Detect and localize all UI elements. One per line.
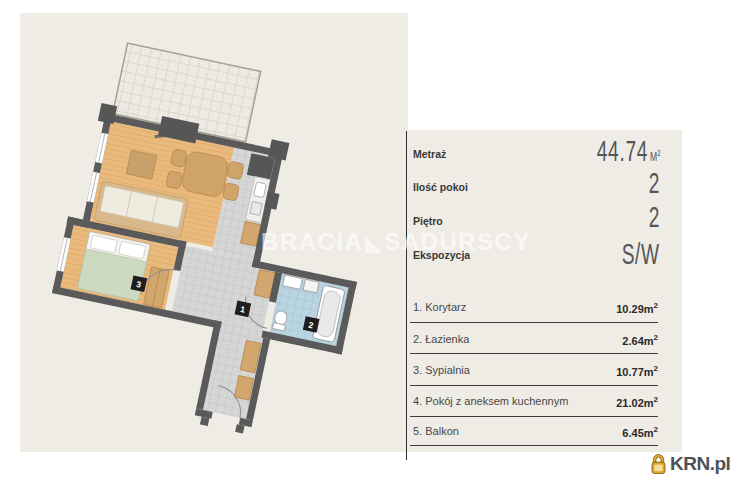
chair: [222, 183, 239, 202]
room-row-label: 1. Korytarz: [413, 301, 466, 313]
row-separator: [410, 445, 658, 446]
coffee-table: [126, 150, 156, 179]
room-row-label: 3. Sypialnia: [413, 364, 470, 376]
dining-table: [180, 150, 229, 198]
chair: [227, 161, 244, 180]
watermark-part1: BRACIA: [261, 228, 363, 255]
top-right-whitespace: [408, 13, 682, 130]
room-row-label: 2. Łazienka: [413, 333, 469, 345]
room-row-area: 2.64m2: [622, 333, 658, 347]
krn-logo: KRN.pl: [650, 453, 730, 475]
panel-divider: [406, 131, 407, 460]
spec-label-ilosc-pokoi: Ilość pokoi: [413, 181, 468, 193]
row-separator: [410, 385, 658, 386]
spec-value-ilosc-pokoi: 2: [649, 169, 660, 198]
listing-floorplan-card: 1 2 3 BRACIA◣SADURSCY Metraż Ilość pokoi…: [0, 0, 740, 490]
row-separator: [410, 353, 658, 354]
spec-label-pietro: Piętro: [413, 215, 443, 227]
details-panel: Metraż Ilość pokoi Piętro Ekspozycja 44.…: [408, 130, 682, 452]
spec-value-ekspozycja: S/W: [622, 240, 660, 269]
washing-machine: [303, 279, 319, 293]
krn-padlock-icon: [650, 453, 667, 475]
room-row-area: 10.29m2: [616, 301, 658, 315]
room-row-area: 6.45m2: [622, 425, 658, 439]
chair: [166, 171, 183, 190]
room-row-label: 5. Balkon: [413, 425, 459, 437]
chair: [170, 149, 187, 168]
spec-label-metraz: Metraż: [413, 148, 446, 160]
row-separator: [410, 416, 658, 417]
wall-pier: [268, 139, 289, 160]
room-row-label: 4. Pokój z aneksem kuchennym: [413, 395, 568, 407]
cooktop: [250, 202, 262, 216]
room-row-area: 21.02m2: [616, 395, 658, 409]
spec-value-pietro: 2: [649, 203, 660, 232]
room-row-area: 10.77m2: [616, 364, 658, 378]
spec-label-ekspozycja: Ekspozycja: [413, 249, 470, 261]
watermark-logo-icon: ◣: [365, 232, 382, 254]
krn-logo-text: KRN.pl: [670, 453, 730, 475]
row-separator: [410, 322, 658, 323]
spec-value-metraz: 44.74M2: [596, 137, 660, 166]
